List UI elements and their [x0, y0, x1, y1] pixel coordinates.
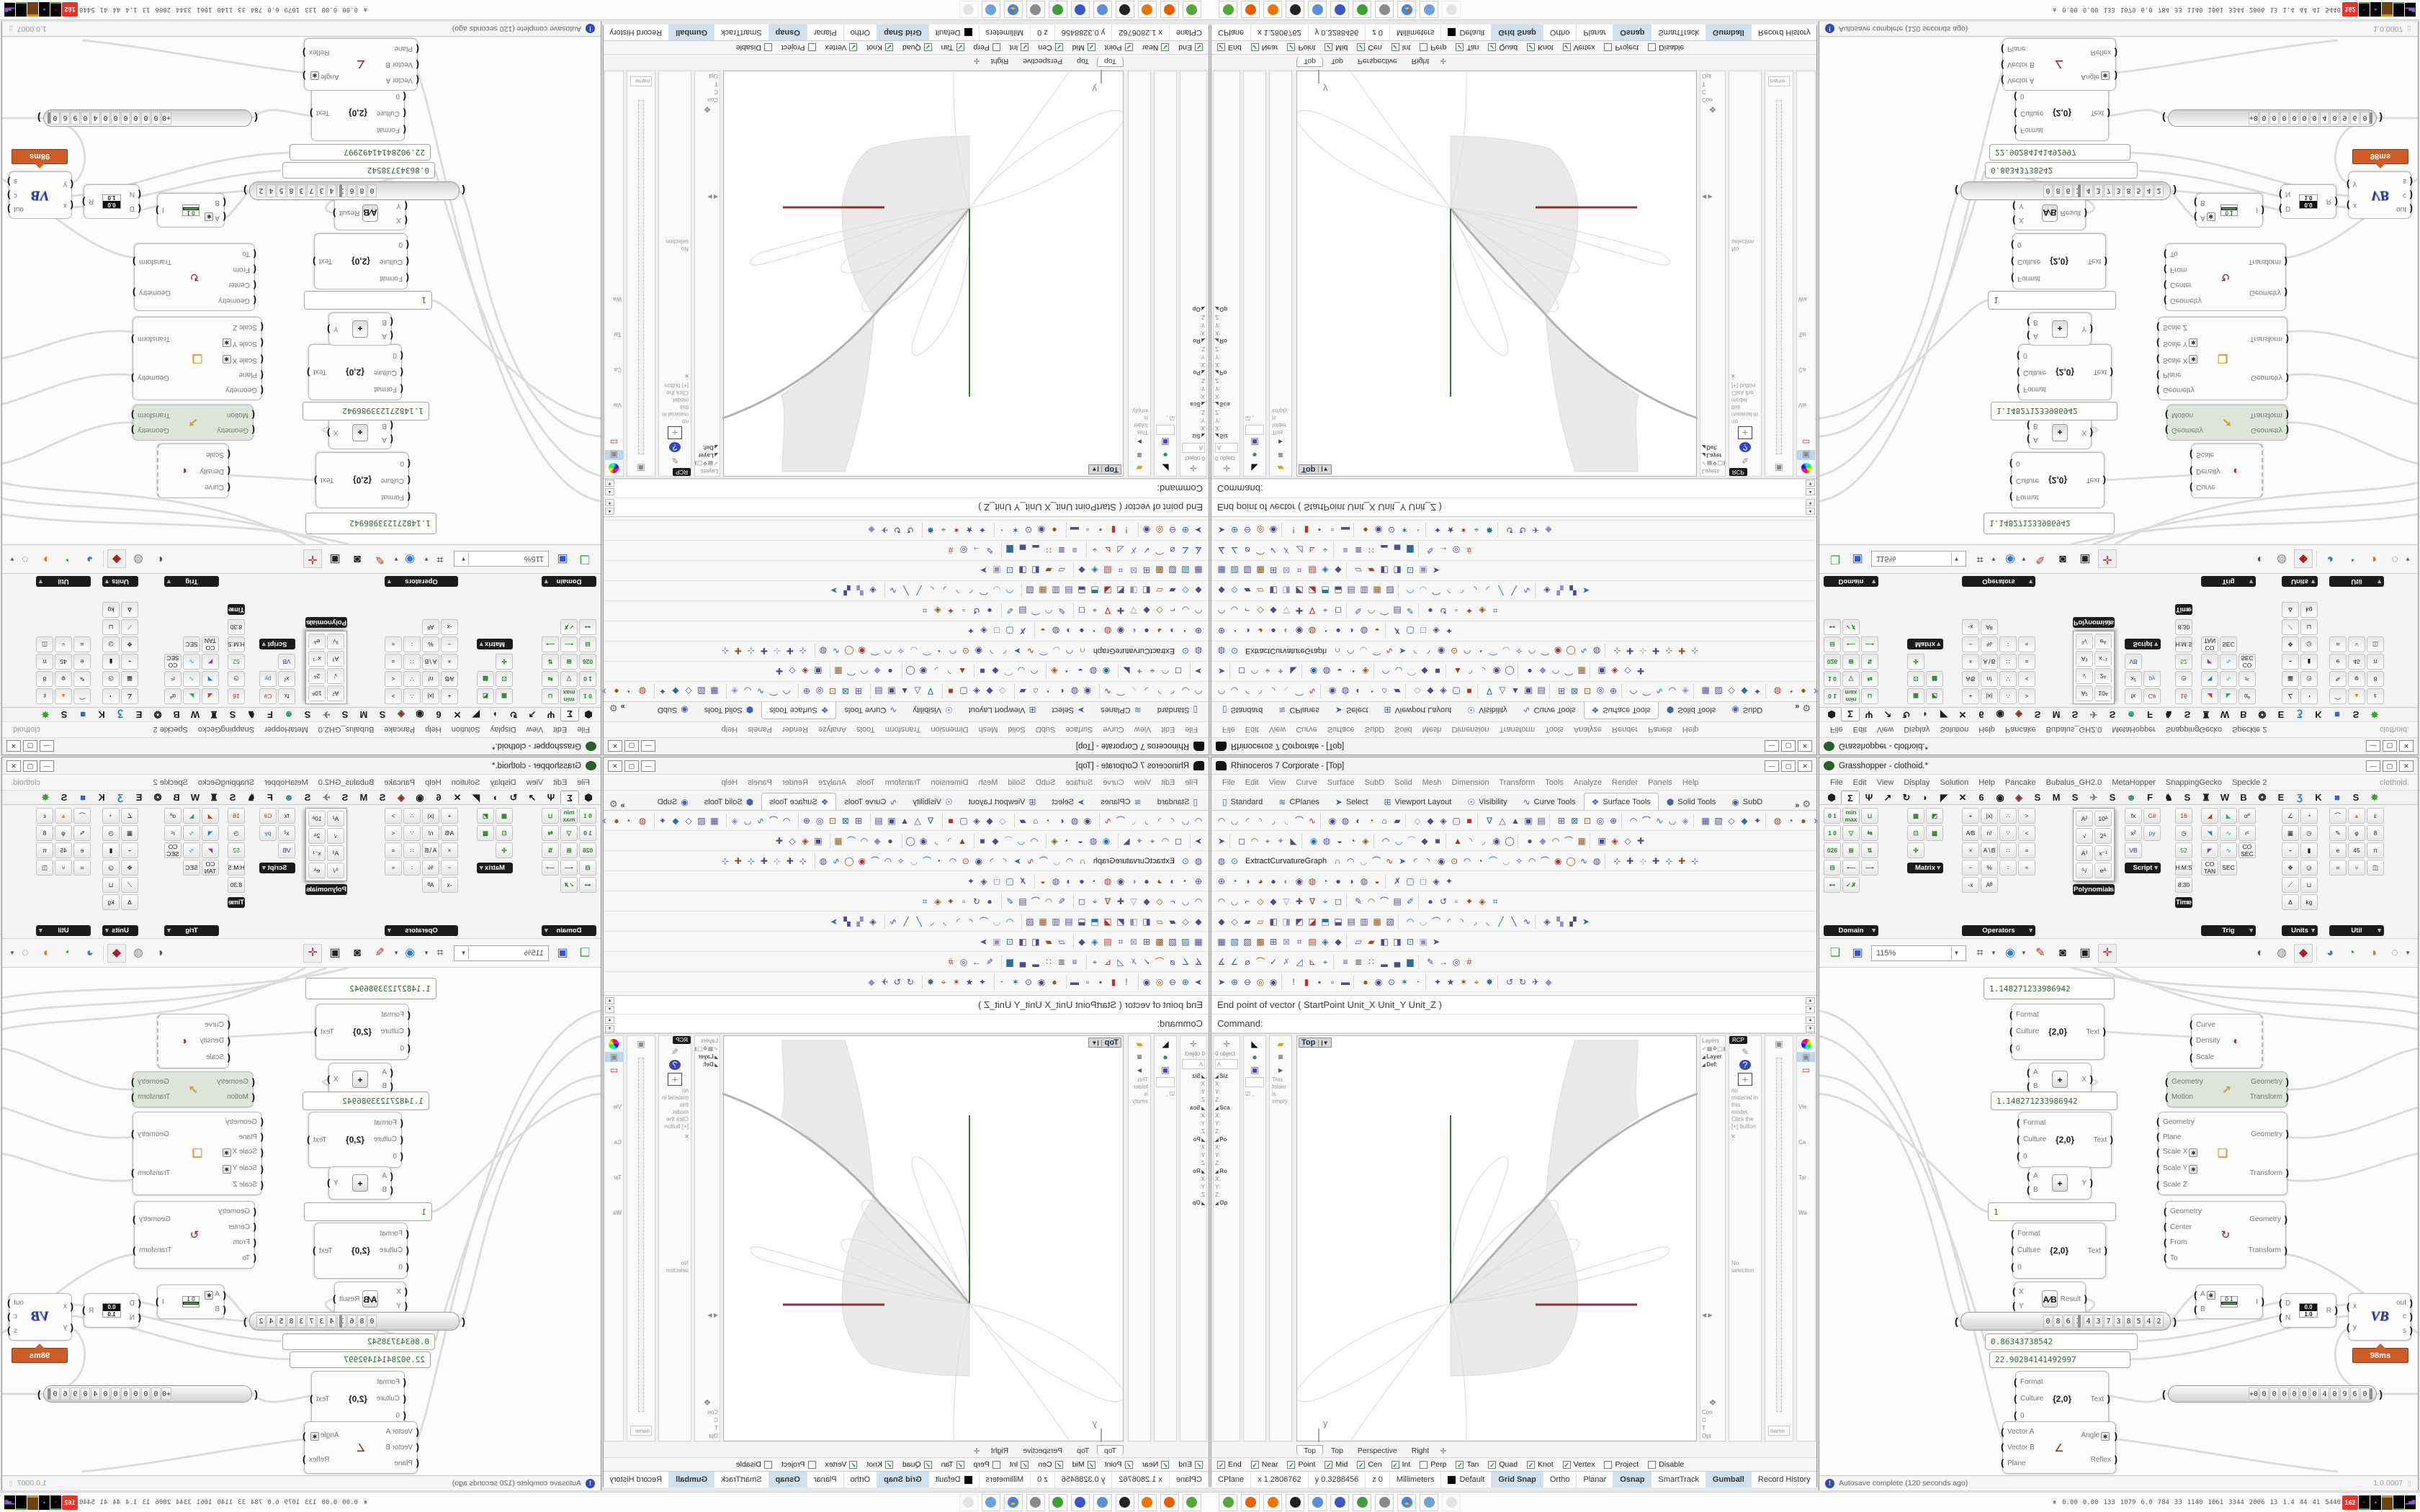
osnap-tan[interactable]: ✓Tan: [1456, 43, 1479, 52]
toolbar-icon[interactable]: ◎: [1450, 955, 1463, 968]
osnap-cen[interactable]: ✓Cen: [1357, 43, 1381, 52]
tools-panel-icon[interactable]: ◣: [1155, 1039, 1176, 1049]
toolbar-icon[interactable]: ◟: [1127, 814, 1140, 827]
tools-panel[interactable]: ◣●▣☑ ,: [1154, 71, 1177, 477]
checkbox-icon[interactable]: ✓: [1527, 44, 1535, 52]
tools-panel-icon[interactable]: ▣: [1155, 437, 1176, 447]
checkbox-icon[interactable]: ✓: [1391, 1461, 1399, 1469]
component-icon[interactable]: ∠: [2282, 688, 2299, 704]
toolbar-icon[interactable]: ◡: [1417, 915, 1430, 928]
toolbar-icon[interactable]: ▮: [1107, 524, 1120, 537]
close-icon[interactable]: ✕: [659, 372, 691, 380]
toolbar-icon[interactable]: ➤: [828, 585, 841, 598]
toolbar-icon[interactable]: ◆: [1215, 585, 1228, 598]
osnap-end[interactable]: ✓End: [1217, 1460, 1242, 1469]
gh-node-angle[interactable]: Vector AVector BPlaneAngle✱Reflex∠: [2002, 1421, 2116, 1474]
toolbar-icon[interactable]: ◐: [1055, 685, 1068, 698]
checkbox-icon[interactable]: [808, 44, 816, 52]
toolbar-icon[interactable]: ✈: [1529, 976, 1542, 989]
toolbar-icon[interactable]: ✶: [1457, 524, 1470, 537]
gh-category-tab-25[interactable]: Ʒ: [111, 708, 130, 721]
gh-category-tab-11[interactable]: S: [373, 708, 392, 721]
toolbar-icon[interactable]: ⌖: [1470, 524, 1483, 537]
toolbar-icon[interactable]: ◯: [904, 834, 917, 847]
toolbar-icon[interactable]: ◣: [1287, 834, 1300, 847]
component-icon[interactable]: 8: [36, 825, 53, 841]
gh-category-tab-10[interactable]: ◈: [392, 708, 411, 721]
toolbar-icon[interactable]: ▣: [885, 685, 898, 698]
component-icon[interactable]: ◷: [2175, 671, 2192, 687]
close-button[interactable]: ✕: [1798, 741, 1812, 752]
toolbar-icon[interactable]: ➤: [1192, 524, 1205, 537]
tray-graph-icon[interactable]: ▁: [2393, 3, 2404, 17]
toolbar-icon[interactable]: ◨: [1127, 915, 1140, 928]
osnap-vertex[interactable]: ✓Vertex: [825, 43, 858, 52]
toolbar-icon[interactable]: ➤: [1579, 915, 1592, 928]
osnap-tan[interactable]: ✓Tan: [1456, 1460, 1479, 1469]
browser-icon[interactable]: ▰: [1129, 1039, 1150, 1049]
toolbar-icon[interactable]: ▲: [1509, 814, 1522, 827]
toolbar-icon[interactable]: ╲: [1507, 585, 1520, 598]
component-icon[interactable]: py: [2143, 671, 2161, 687]
rhino-tab-viewport-layout[interactable]: ⊞Viewport Layout: [1376, 702, 1460, 719]
gh-node-remap-numbers[interactable]: DNR0.01.0: [2280, 1293, 2336, 1328]
gh-node-scale-nu[interactable]: GeometryPlaneScale X✱Scale Y✱Scale ZGeom…: [133, 1112, 262, 1195]
toolbar-icon[interactable]: ⊙: [1022, 524, 1035, 537]
chevron-down-icon[interactable]: ▼: [9, 950, 15, 956]
display-item[interactable]: Opt: [695, 1431, 720, 1439]
toolbar-icon[interactable]: ◻: [1075, 605, 1088, 618]
toolbar-icon[interactable]: ◉: [1326, 685, 1339, 698]
toolbar-icon[interactable]: ▽: [1127, 895, 1140, 908]
toolbar-icon[interactable]: ⌀: [1241, 544, 1254, 557]
tray-graph-icon[interactable]: ▂▅▇: [2405, 3, 2416, 17]
component-icon[interactable]: 2ᴬ: [308, 668, 326, 684]
checkbox-icon[interactable]: ✓: [1088, 1461, 1095, 1469]
component-icon[interactable]: ⊔: [542, 688, 559, 704]
toolbar-icon[interactable]: ▣: [1522, 814, 1535, 827]
toolbar-icon[interactable]: ⌐: [1241, 605, 1254, 618]
component-icon[interactable]: >: [385, 808, 402, 824]
toolbar-icon[interactable]: ◡: [1050, 855, 1063, 868]
pen-icon[interactable]: ✎: [1729, 455, 1761, 465]
toolbar-icon[interactable]: #: [1463, 544, 1476, 557]
toolbar-icon[interactable]: ◉: [1100, 834, 1113, 847]
viewport-menu-caret-icon[interactable]: |▼: [1092, 1040, 1102, 1046]
component-icon[interactable]: 8: [2367, 671, 2384, 687]
toolbar-icon[interactable]: ◇: [1411, 685, 1424, 698]
gh-category-tab-27[interactable]: ■: [73, 791, 92, 804]
component-icon[interactable]: ≈: [385, 636, 402, 652]
status-y-0-3288456[interactable]: y 0.3288456: [1309, 24, 1366, 40]
render-icon[interactable]: ❖: [1700, 1398, 1725, 1408]
toolbar-icon[interactable]: ⌒: [1487, 855, 1500, 868]
toolbar-icon[interactable]: ◆: [1536, 834, 1549, 847]
toolbar-icon[interactable]: ✐: [1404, 895, 1417, 908]
toolbar-icon[interactable]: ⌀: [1166, 544, 1179, 557]
toolbar-icon[interactable]: ⌒: [1002, 665, 1015, 678]
toolbar-icon[interactable]: ◈: [1437, 814, 1450, 827]
toolbar-icon[interactable]: ⊡: [1581, 685, 1594, 698]
status-cplane[interactable]: CPlane: [1211, 1472, 1251, 1488]
boxedit-section-ro[interactable]: Ro: [1214, 338, 1240, 346]
status-osnap[interactable]: Osnap: [768, 24, 807, 40]
component-icon[interactable]: ∴: [403, 808, 421, 824]
maximize-button[interactable]: ▢: [2383, 760, 2397, 772]
toolbar-icon[interactable]: ◞: [1140, 685, 1153, 698]
gh-category-tab-0[interactable]: ⬢: [1822, 791, 1841, 804]
gh-menu-item[interactable]: Speckle 2: [2227, 778, 2272, 787]
toolbar-icon[interactable]: ◆: [1738, 685, 1751, 698]
toolbar-icon[interactable]: ◡: [1228, 685, 1241, 698]
gh-category-tab-2[interactable]: Ψ: [542, 708, 560, 721]
taskbar-app-icon[interactable]: [1219, 1494, 1237, 1511]
component-icon[interactable]: 52: [228, 654, 245, 670]
component-icon[interactable]: ⌁: [121, 842, 138, 858]
palette-group-label[interactable]: Trig▾: [164, 576, 219, 587]
gh-menu-item[interactable]: Pancake: [379, 726, 420, 734]
component-icon[interactable]: CO SEC: [2238, 654, 2256, 670]
minimize-button[interactable]: —: [2366, 760, 2380, 772]
component-icon[interactable]: ∴: [1999, 688, 2017, 704]
toolbar-icon[interactable]: ◍: [1068, 685, 1081, 698]
toolbar-icon[interactable]: ◇: [1153, 605, 1166, 618]
minimize-button[interactable]: —: [40, 760, 54, 772]
safe-frame-icon[interactable]: ▭: [1797, 1065, 1815, 1075]
save-definition-icon[interactable]: ▣: [1849, 551, 1866, 568]
toolbar-icon[interactable]: ◆: [1738, 814, 1751, 827]
group-green-icon[interactable]: ◔: [60, 551, 77, 568]
toolbar-icon[interactable]: ◉: [1372, 524, 1385, 537]
viewport-properties-panel[interactable]: ◉▣▭VieCaTarWa: [604, 71, 624, 477]
toolbar-icon[interactable]: ⊞: [1555, 814, 1568, 827]
gh-category-tab-19[interactable]: S: [2178, 791, 2197, 804]
toolbar-icon[interactable]: ◠: [1192, 685, 1205, 698]
layer-row[interactable]: Layer: [695, 452, 720, 460]
viewprops-item[interactable]: Vie: [605, 402, 623, 410]
toolbar-icon[interactable]: ◝: [1254, 685, 1267, 698]
gh-node-format-4[interactable]: FormatCulture0Text{2,0}: [311, 1371, 405, 1427]
rhino-tab-viewport-layout[interactable]: ⊞Viewport Layout: [961, 793, 1044, 810]
tray-graph-icon[interactable]: ▁: [16, 1495, 27, 1510]
gh-menu-item[interactable]: Edit: [548, 726, 572, 734]
group-green-icon[interactable]: ◔: [60, 945, 77, 962]
component-icon[interactable]: ⟋: [2282, 877, 2299, 893]
gh-category-tab-8[interactable]: 6: [429, 791, 448, 804]
toolbar-icon[interactable]: ▧: [1228, 564, 1241, 577]
toolbar-icon[interactable]: ▱: [1153, 915, 1166, 928]
component-icon[interactable]: ◷: [2175, 825, 2192, 841]
component-icon[interactable]: x⁻¹: [308, 651, 326, 667]
rhino-menu-item[interactable]: Transform: [880, 726, 926, 734]
toolbar-icon[interactable]: ⊹: [1688, 855, 1701, 868]
component-icon[interactable]: π: [2367, 842, 2384, 858]
toolbar-icon[interactable]: ⬓: [1075, 585, 1088, 598]
gh-category-tab-10[interactable]: ◈: [392, 791, 411, 804]
component-icon[interactable]: ▩: [477, 671, 494, 687]
status-millimeters[interactable]: Millimeters: [1390, 24, 1442, 40]
gh-category-tab-29[interactable]: ✸: [2365, 708, 2384, 721]
component-icon[interactable]: ✣: [1907, 842, 1924, 858]
toolbar-icon[interactable]: ▦: [1192, 564, 1205, 577]
taskbar-app-icon[interactable]: [1049, 1, 1067, 19]
component-icon[interactable]: ◩: [1926, 808, 1943, 824]
component-icon[interactable]: ✥: [121, 636, 138, 652]
toolbar-icon[interactable]: ◍: [1590, 645, 1603, 658]
gh-category-tab-16[interactable]: ☻: [2122, 791, 2141, 804]
toolbar-icon[interactable]: ▰: [1365, 935, 1378, 948]
toolbar-icon[interactable]: ◉: [856, 855, 869, 868]
component-icon[interactable]: ✎: [73, 671, 91, 687]
status-default[interactable]: Default: [1441, 1472, 1492, 1488]
taskbar-app-icon[interactable]: [1160, 1494, 1179, 1511]
taskbar-app-icon[interactable]: [1004, 1, 1023, 19]
gh-category-tab-23[interactable]: ❂: [2253, 708, 2272, 721]
rhino-menu-item[interactable]: Edit: [1240, 726, 1264, 734]
toolbar-icon[interactable]: ◞: [930, 665, 943, 678]
layers-toolbar-icons[interactable]: ✓▦❖▢▣: [695, 1044, 720, 1052]
component-icon[interactable]: ✓✗: [560, 619, 578, 635]
rhino-menu-item[interactable]: Tools: [1540, 778, 1569, 787]
component-icon[interactable]: ∠: [121, 808, 138, 824]
toolbar-icon[interactable]: ▩: [1254, 564, 1267, 577]
toolbar-icon[interactable]: ◻: [1235, 834, 1248, 847]
component-icon[interactable]: √: [327, 828, 344, 844]
checkbox-icon[interactable]: ✓: [1217, 44, 1225, 52]
component-icon[interactable]: ε: [2367, 688, 2384, 704]
toolbar-icon[interactable]: ◧: [1140, 585, 1153, 598]
component-icon[interactable]: ◫: [2367, 860, 2384, 876]
palette-group-label[interactable]: Matrix▾: [477, 863, 513, 873]
toolbar-icon[interactable]: ⊠: [1127, 935, 1140, 948]
component-icon[interactable]: ∴: [1999, 808, 2017, 824]
minimize-button[interactable]: —: [641, 741, 655, 752]
toolbar-icon[interactable]: ▬: [1068, 524, 1081, 537]
palette-group-label[interactable]: Util▾: [2329, 925, 2384, 936]
toolbar-icon[interactable]: ◈: [799, 834, 812, 847]
toolbar-icon[interactable]: ∿: [754, 685, 767, 698]
component-icon[interactable]: x²: [278, 825, 295, 841]
osnap-near[interactable]: ✓Near: [1251, 1460, 1278, 1469]
component-icon[interactable]: e: [73, 654, 91, 670]
toolbar-icon[interactable]: ◻: [990, 875, 1003, 888]
component-icon[interactable]: 1 0: [579, 671, 596, 687]
toolbar-icon[interactable]: !: [1120, 524, 1133, 537]
component-icon[interactable]: ◔: [102, 808, 120, 824]
sketch-pen-icon[interactable]: ✎: [371, 551, 388, 568]
toolbar-icon[interactable]: ●: [1359, 524, 1372, 537]
new-viewport-icon[interactable]: ✛: [971, 1446, 983, 1456]
viewprops-item[interactable]: Ca: [1797, 366, 1815, 374]
toolbar-icon[interactable]: ◠: [1215, 814, 1228, 827]
toolbar-icon[interactable]: ◨: [1391, 564, 1404, 577]
toolbar-icon[interactable]: ⊕: [1215, 625, 1228, 638]
toolbar-icon[interactable]: ⊾: [1101, 544, 1114, 557]
toolbar-icon[interactable]: ▱: [1055, 935, 1068, 948]
sketch-pen-icon[interactable]: ✎: [371, 945, 388, 962]
toolbar-icon[interactable]: ◟: [926, 915, 938, 928]
toolbar-icon[interactable]: ⊹: [1688, 645, 1701, 658]
component-icon[interactable]: SEC: [183, 636, 200, 652]
gh-category-tab-26[interactable]: K: [92, 791, 111, 804]
toolbar-icon[interactable]: ⌒: [977, 915, 990, 928]
osnap-vertex[interactable]: ✓Vertex: [1563, 1460, 1595, 1469]
toolbar-icon[interactable]: ▧: [1384, 585, 1397, 598]
toolbar-icon[interactable]: ∿: [1101, 685, 1114, 698]
toolbar-icon[interactable]: ➤: [977, 935, 990, 948]
checkbox-icon[interactable]: ✓: [1021, 1461, 1028, 1469]
toolbar-icon[interactable]: #: [944, 544, 957, 557]
checkbox-icon[interactable]: ✓: [1055, 1461, 1063, 1469]
toolbar-icon[interactable]: ⊙: [1179, 855, 1192, 868]
toolbar-icon[interactable]: ◇: [1254, 895, 1267, 908]
viewport-tab-top-0[interactable]: Top: [1296, 1445, 1323, 1456]
gh-node-construct-domain[interactable]: A✱BI0 1: [2195, 193, 2263, 228]
tools-checkbox[interactable]: ☑ ,: [1155, 1089, 1176, 1097]
rhino-menu-item[interactable]: Analyze: [1569, 726, 1607, 734]
component-icon[interactable]: %: [1981, 636, 1998, 652]
toolbar-icon[interactable]: ⬓: [1332, 585, 1345, 598]
status-record-history[interactable]: Record History: [1752, 1472, 1816, 1488]
layers-panel[interactable]: Layers✓▦❖▢▣LayerDef:◀ ▶❖ConCTOpt: [694, 71, 720, 477]
toolbar-icon[interactable]: ◝: [1153, 814, 1166, 827]
rhino-tab-select[interactable]: ➤Select: [1044, 793, 1093, 810]
toolbar-icon[interactable]: ▧: [1712, 685, 1725, 698]
checkbox-icon[interactable]: ✓: [924, 44, 932, 52]
gh-node-format-3[interactable]: FormatCulture0Text{2,0}: [2012, 233, 2106, 289]
display-item[interactable]: Con: [695, 96, 720, 104]
gh-menu-item[interactable]: Edit: [548, 778, 572, 787]
toolbar-icon[interactable]: ◞: [1469, 915, 1482, 928]
component-icon[interactable]: ▦: [1907, 808, 1924, 824]
toolbar-icon[interactable]: ▫: [957, 895, 970, 908]
boxedit-section-siz[interactable]: Siz: [1180, 1071, 1206, 1079]
toolbar-icon[interactable]: ◜: [964, 585, 977, 598]
toolbar-icon[interactable]: ⊡: [1003, 935, 1016, 948]
toolbar-icon[interactable]: ✗: [1016, 625, 1029, 638]
group-orange-icon[interactable]: ◑: [2365, 551, 2382, 568]
toolbar-icon[interactable]: ◜: [1409, 645, 1422, 658]
layers-nav-buttons[interactable]: ◀ ▶: [1700, 1310, 1714, 1318]
toolbar-icon[interactable]: ≡: [1339, 955, 1352, 968]
taskbar-app-icon[interactable]: [1093, 1, 1112, 19]
toolbar-icon[interactable]: ▆: [1404, 544, 1417, 557]
add-material-button[interactable]: +: [668, 1073, 682, 1086]
toolbar-icon[interactable]: ⌒: [1037, 855, 1050, 868]
viewport-title-badge[interactable]: Top |▼: [1299, 464, 1332, 474]
toolbar-icon[interactable]: ■: [944, 814, 957, 827]
component-icon[interactable]: ✎: [2329, 825, 2347, 841]
component-icon[interactable]: π: [2367, 654, 2384, 670]
rhino-titlebar[interactable]: Rhinoceros 7 Corporate - [Top] —▢✕: [1211, 737, 1816, 755]
toolbar-icon[interactable]: ◯: [1564, 645, 1577, 658]
toolbar-icon[interactable]: ◇: [1254, 605, 1267, 618]
toolbar-icon[interactable]: ⌒: [845, 834, 858, 847]
display-item[interactable]: C: [695, 89, 720, 96]
gh-category-tab-18[interactable]: ♞: [2159, 708, 2178, 721]
toolbar-icon[interactable]: ✗: [1127, 544, 1140, 557]
gh-category-tab-16[interactable]: ☻: [2122, 708, 2141, 721]
palette-group-label[interactable]: Time▾: [2175, 604, 2192, 615]
close-button[interactable]: ✕: [6, 741, 21, 752]
toolbar-icon[interactable]: ◑: [1345, 625, 1358, 638]
component-icon[interactable]: ∿: [183, 654, 200, 670]
component-icon[interactable]: fx: [278, 808, 295, 824]
gh-category-tab-26[interactable]: K: [92, 708, 111, 721]
component-icon[interactable]: ◣: [183, 688, 200, 704]
toolbar-icon[interactable]: ➤: [1215, 834, 1228, 847]
toolbar-icon[interactable]: ⌖: [1470, 976, 1483, 989]
taskbar-app-icon[interactable]: [1442, 1494, 1461, 1511]
viewport-top[interactable]: y x Top |▼: [723, 1035, 1124, 1441]
tools-field[interactable]: [1156, 425, 1175, 435]
toolbar-icon[interactable]: ◇: [996, 685, 1009, 698]
gh-titlebar[interactable]: Grasshopper - clothoid.* —▢✕: [1819, 757, 2418, 775]
rhino-menu-item[interactable]: Mesh: [973, 778, 1003, 787]
taskbar-app-icon[interactable]: [1263, 1494, 1282, 1511]
component-icon[interactable]: ∿: [2220, 842, 2237, 858]
component-icon[interactable]: ⊔: [102, 877, 120, 893]
toolbar-icon[interactable]: ↺: [1437, 605, 1450, 618]
status-default[interactable]: Default: [928, 1472, 979, 1488]
toolbar-icon[interactable]: ◈: [1437, 685, 1450, 698]
toolbar-icon[interactable]: ∇: [924, 814, 937, 827]
gh-category-tab-27[interactable]: ■: [2328, 708, 2347, 721]
toolbar-icon[interactable]: ◉: [1114, 625, 1127, 638]
status-ortho[interactable]: Ortho: [1543, 24, 1577, 40]
display-item[interactable]: Opt: [1700, 73, 1725, 81]
component-icon[interactable]: ◷: [102, 825, 120, 841]
osnap-near[interactable]: ✓Near: [1251, 43, 1278, 52]
toolbar-icon[interactable]: ➤: [977, 564, 990, 577]
toolbar-icon[interactable]: ◍: [1306, 875, 1319, 888]
toolbar-icon[interactable]: ●: [1048, 976, 1061, 989]
status-gumball[interactable]: Gumball: [1706, 1472, 1752, 1488]
gh-menu-item[interactable]: File: [572, 778, 595, 787]
status-smarttrack[interactable]: SmartTrack: [1652, 24, 1706, 40]
gh-panel-panel-c[interactable]: 0.86343738542: [282, 162, 435, 179]
gh-category-tab-27[interactable]: ■: [73, 708, 92, 721]
toolbar-icon[interactable]: ▢: [957, 814, 970, 827]
gh-category-tab-11[interactable]: S: [2028, 708, 2047, 721]
toolbar-icon[interactable]: ◑: [1062, 625, 1075, 638]
toolbar-icon[interactable]: ◆: [1075, 564, 1088, 577]
toolbar-icon[interactable]: ▂: [1029, 955, 1042, 968]
toolbar-icon[interactable]: ◈: [977, 875, 990, 888]
component-icon[interactable]: A∖B: [422, 842, 439, 858]
gh-node-move[interactable]: GeometryMotionGeometryTransform➚: [133, 1071, 254, 1107]
checkbox-icon[interactable]: ✓: [956, 1461, 964, 1469]
osnap-knot[interactable]: ✓Knot: [1527, 43, 1554, 52]
toolbar-icon[interactable]: ▬: [1068, 976, 1081, 989]
viewport-tab-top-0[interactable]: Top: [1296, 56, 1323, 67]
component-icon[interactable]: min max: [1842, 688, 1860, 704]
toolbar-icon[interactable]: ◨: [1016, 564, 1029, 577]
component-icon[interactable]: ◥: [2201, 671, 2218, 687]
toolbar-icon[interactable]: ⌗: [918, 605, 931, 618]
toolbar-icon[interactable]: ◿: [1114, 955, 1127, 968]
gh-category-tab-9[interactable]: ◉: [1991, 708, 2009, 721]
gh-category-tab-26[interactable]: K: [2309, 708, 2328, 721]
component-icon[interactable]: CO SEC: [2238, 842, 2256, 858]
component-icon[interactable]: ◷: [2300, 825, 2318, 841]
component-icon[interactable]: 16: [2175, 808, 2192, 824]
gh-node-format-4[interactable]: FormatCulture0Text{2,0}: [2015, 1371, 2109, 1427]
toolbar-icon[interactable]: △: [911, 814, 924, 827]
toolbar-icon[interactable]: ▰: [1166, 915, 1179, 928]
toolbar-icon[interactable]: ◠: [1379, 665, 1392, 678]
palette-group-label[interactable]: Util▾: [36, 576, 91, 587]
